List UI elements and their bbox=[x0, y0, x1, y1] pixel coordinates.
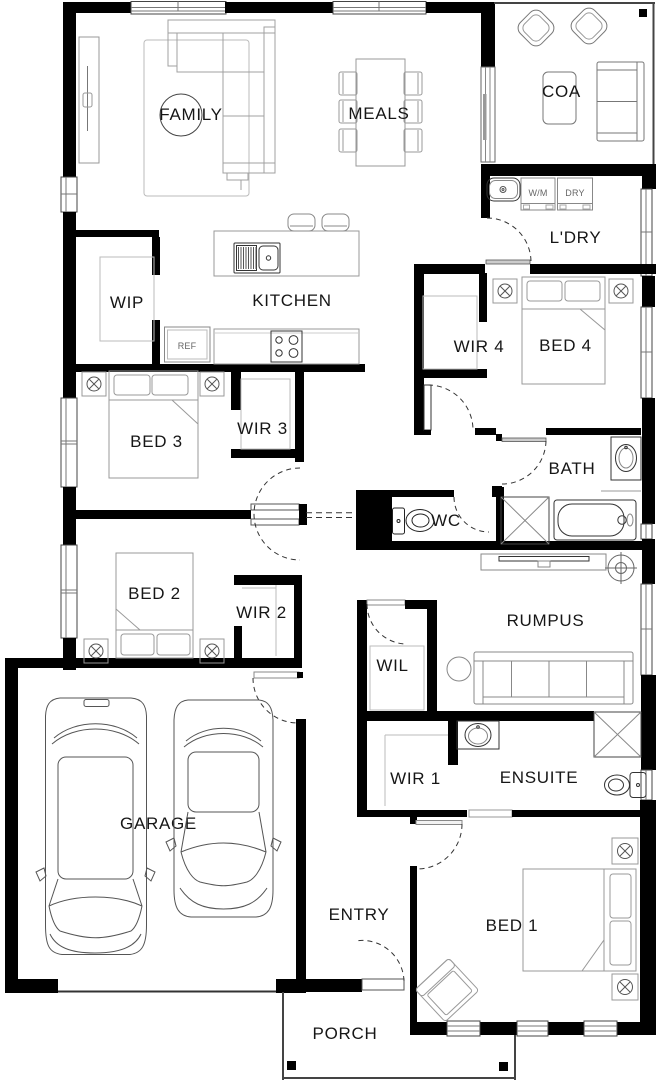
svg-text:BATH: BATH bbox=[549, 459, 596, 478]
svg-text:BED 2: BED 2 bbox=[128, 584, 181, 603]
svg-text:WIR 1: WIR 1 bbox=[390, 769, 441, 788]
svg-text:BED 3: BED 3 bbox=[130, 432, 183, 451]
svg-text:ENSUITE: ENSUITE bbox=[500, 768, 579, 787]
svg-text:W/M: W/M bbox=[528, 188, 547, 198]
svg-text:FAMILY: FAMILY bbox=[159, 105, 222, 124]
svg-text:GARAGE: GARAGE bbox=[120, 814, 197, 833]
svg-text:DRY: DRY bbox=[565, 188, 584, 198]
svg-text:WIP: WIP bbox=[110, 293, 144, 312]
svg-text:WIR 3: WIR 3 bbox=[237, 419, 288, 438]
svg-text:COA: COA bbox=[542, 82, 581, 101]
svg-text:WIR 2: WIR 2 bbox=[236, 603, 287, 622]
svg-text:BED 4: BED 4 bbox=[539, 336, 592, 355]
svg-text:WIR 4: WIR 4 bbox=[454, 337, 505, 356]
svg-text:BED 1: BED 1 bbox=[486, 916, 539, 935]
svg-text:L'DRY: L'DRY bbox=[550, 228, 602, 247]
svg-text:ENTRY: ENTRY bbox=[329, 905, 390, 924]
svg-text:WIL: WIL bbox=[376, 656, 408, 675]
svg-text:MEALS: MEALS bbox=[348, 104, 409, 123]
svg-text:PORCH: PORCH bbox=[313, 1024, 378, 1043]
svg-text:KITCHEN: KITCHEN bbox=[252, 291, 332, 310]
svg-text:REF: REF bbox=[178, 341, 197, 351]
svg-text:RUMPUS: RUMPUS bbox=[507, 611, 585, 630]
svg-text:WC: WC bbox=[431, 511, 461, 530]
